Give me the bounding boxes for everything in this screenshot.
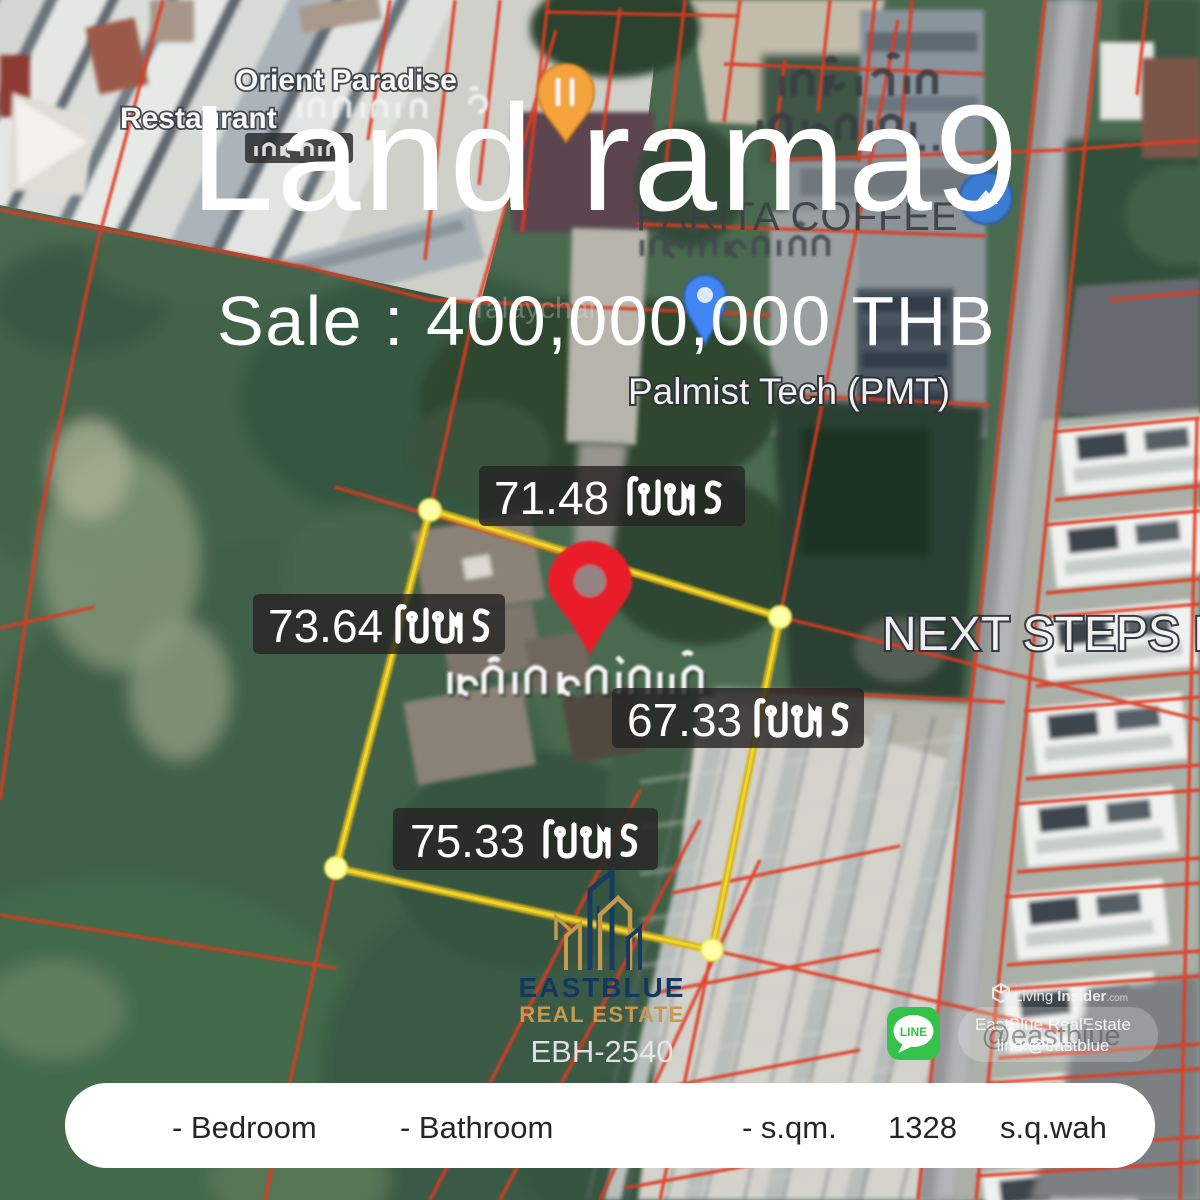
svg-text:line @eastblue: line @eastblue — [997, 1036, 1110, 1055]
svg-text:NEXT STEPS BIG: NEXT STEPS BIG — [882, 608, 1200, 661]
svg-text:- s.qm.: - s.qm. — [742, 1110, 837, 1145]
svg-text:EASTBLUE: EASTBLUE — [519, 972, 686, 1003]
svg-text:LINE: LINE — [900, 1025, 927, 1039]
svg-text:67.33: 67.33 — [627, 694, 742, 746]
svg-text:- Bedroom: - Bedroom — [172, 1110, 317, 1145]
svg-text:REAL ESTATE: REAL ESTATE — [519, 1002, 685, 1027]
svg-text:73.64: 73.64 — [268, 600, 383, 652]
svg-text:s.q.wah: s.q.wah — [1000, 1110, 1107, 1145]
svg-text:Palmist Tech (PMT): Palmist Tech (PMT) — [628, 371, 950, 412]
svg-text:71.48: 71.48 — [494, 472, 609, 524]
svg-text:EBH-2540: EBH-2540 — [530, 1034, 673, 1069]
svg-text:- Bathroom: - Bathroom — [400, 1110, 553, 1145]
svg-text:Sale : 400,000,000 THB: Sale : 400,000,000 THB — [217, 282, 996, 360]
svg-text:75.33: 75.33 — [410, 815, 525, 867]
svg-text:1328: 1328 — [888, 1110, 957, 1145]
svg-text:Land rama9: Land rama9 — [190, 73, 1021, 242]
